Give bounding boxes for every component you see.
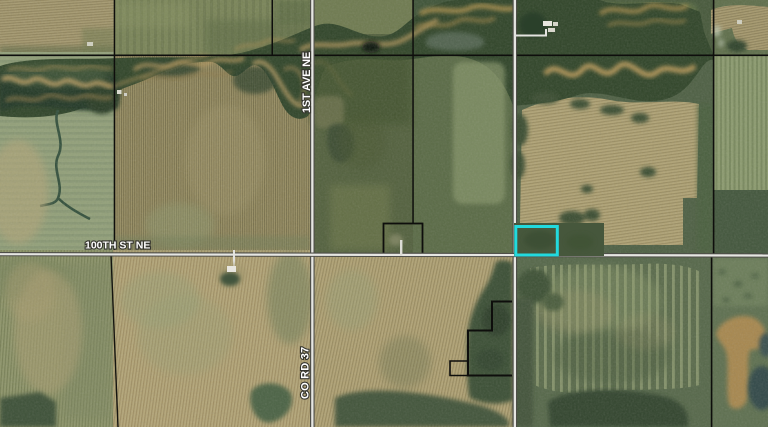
svg-text:CO RD 37: CO RD 37 (299, 347, 311, 399)
svg-text:1ST AVE NE: 1ST AVE NE (301, 52, 313, 113)
svg-text:100TH ST NE: 100TH ST NE (85, 240, 150, 252)
